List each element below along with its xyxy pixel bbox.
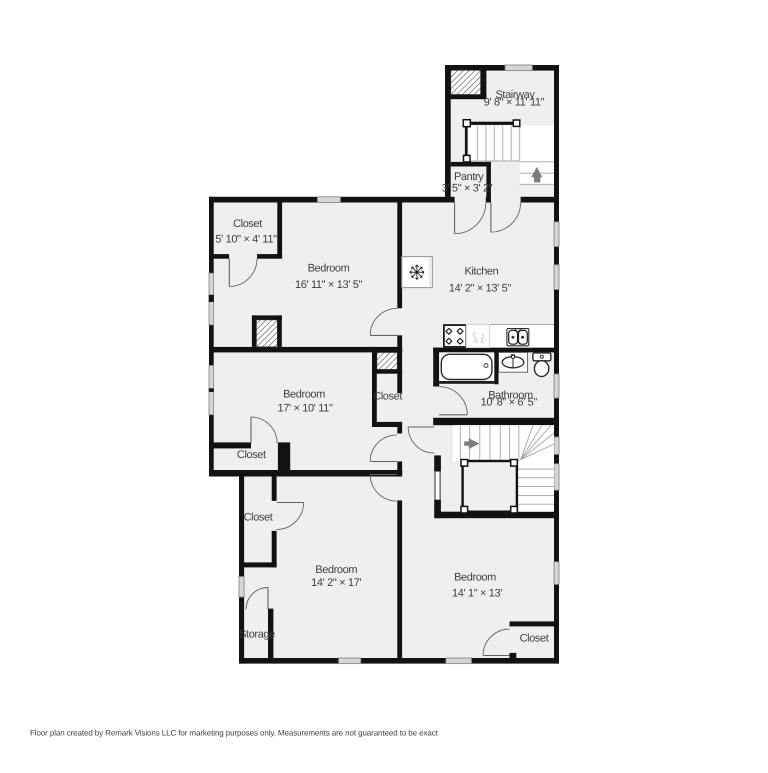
svg-text:Floor plan created by Remark V: Floor plan created by Remark Visions LLC…: [30, 729, 439, 738]
svg-text:10' 8" × 6' 5": 10' 8" × 6' 5": [481, 397, 538, 409]
svg-text:Pantry: Pantry: [454, 171, 484, 183]
svg-text:Storage: Storage: [239, 628, 275, 640]
svg-text:Bedroom: Bedroom: [315, 564, 357, 576]
svg-text:Closet: Closet: [373, 391, 402, 403]
svg-text:5' 10" × 4' 11": 5' 10" × 4' 11": [215, 233, 277, 245]
svg-text:Kitchen: Kitchen: [464, 265, 498, 277]
svg-text:17' × 10' 11": 17' × 10' 11": [277, 403, 332, 415]
svg-text:Closet: Closet: [520, 632, 549, 644]
svg-text:14' 2" × 13' 5": 14' 2" × 13' 5": [449, 283, 512, 295]
svg-text:14' 2" × 17': 14' 2" × 17': [311, 577, 361, 589]
svg-text:3' 5" × 3' 2": 3' 5" × 3' 2": [442, 182, 493, 194]
svg-text:Bedroom: Bedroom: [454, 572, 496, 584]
svg-text:Bedroom: Bedroom: [283, 389, 325, 401]
svg-text:Closet: Closet: [244, 512, 273, 524]
svg-text:Closet: Closet: [237, 449, 266, 461]
svg-text:Bedroom: Bedroom: [308, 263, 350, 275]
svg-text:14' 1" × 13': 14' 1" × 13': [452, 588, 502, 600]
svg-text:9' 8" × 11' 11": 9' 8" × 11' 11": [484, 96, 545, 108]
svg-text:Closet: Closet: [233, 218, 262, 230]
svg-text:16' 11" × 13' 5": 16' 11" × 13' 5": [295, 279, 363, 291]
